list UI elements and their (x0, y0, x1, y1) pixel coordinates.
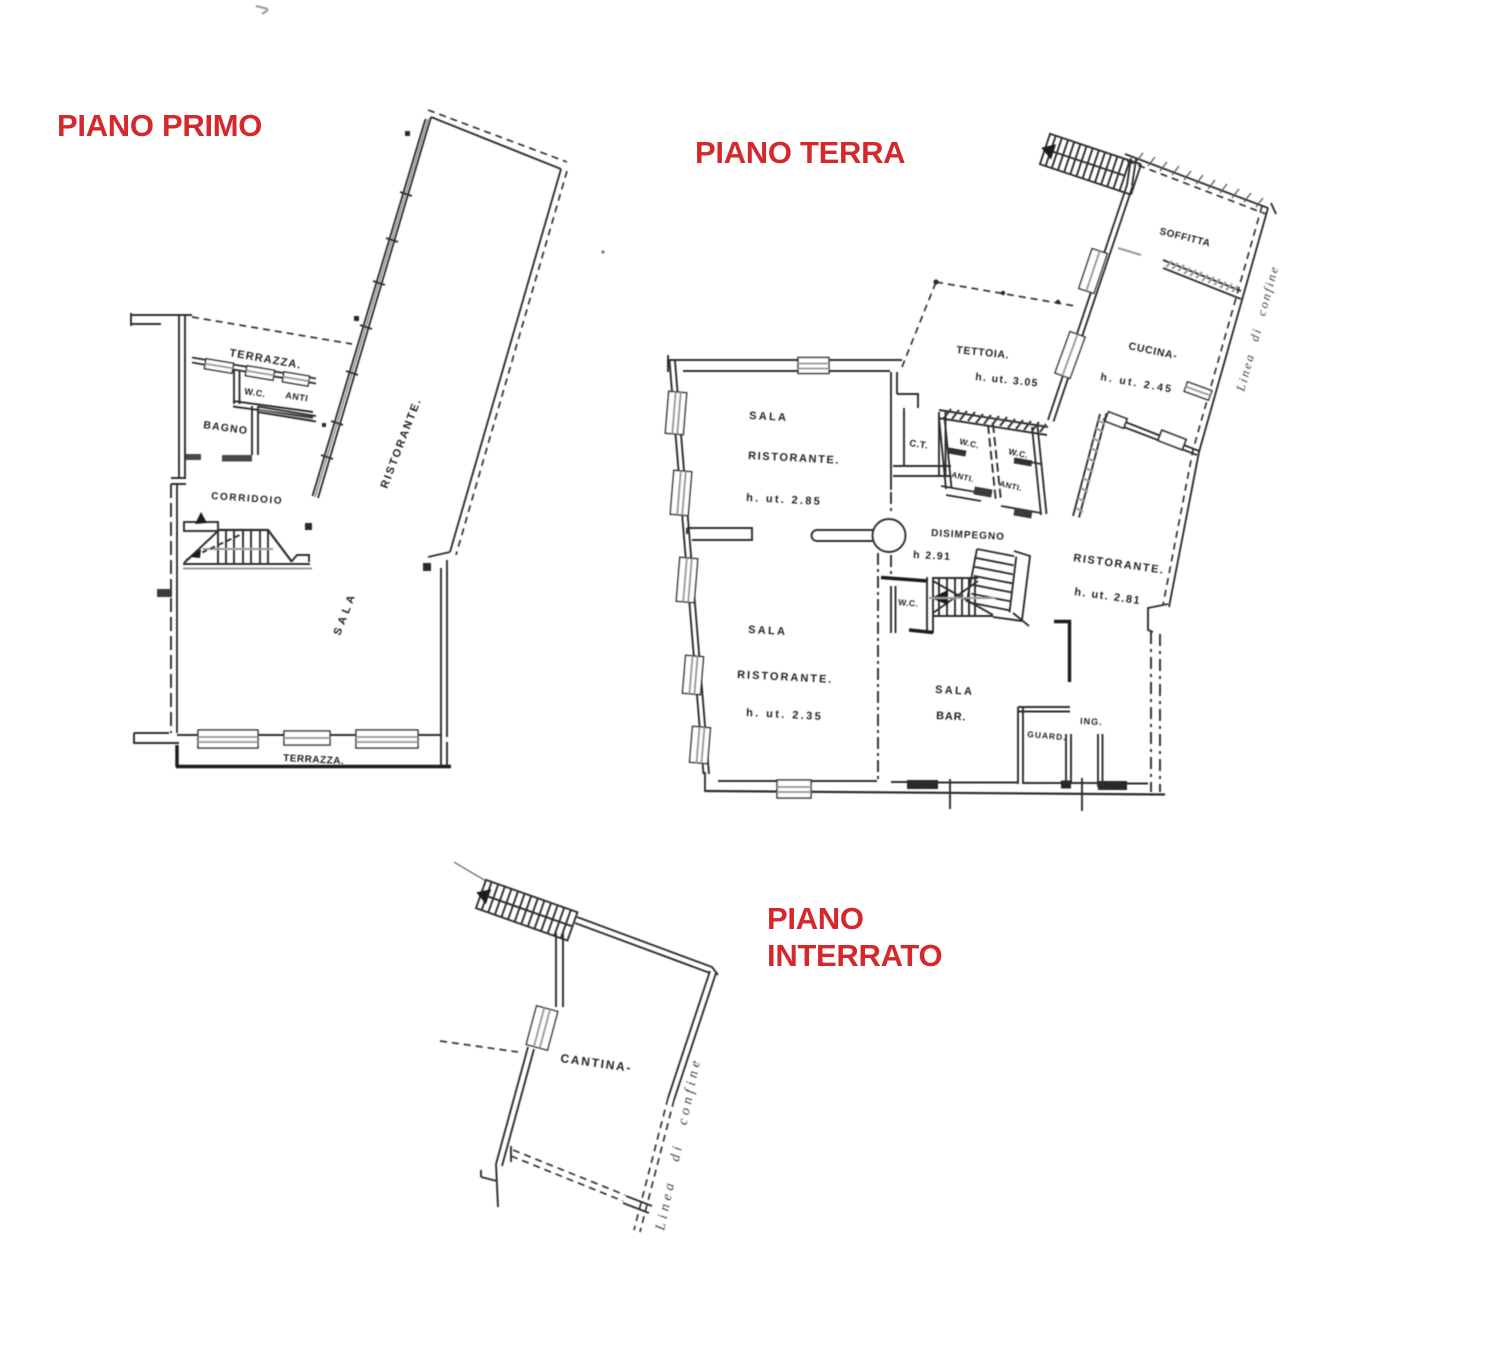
svg-text:CUCINA-: CUCINA- (1127, 340, 1178, 362)
svg-text:C.T.: C.T. (909, 438, 929, 452)
svg-text:h. ut. 2.81: h. ut. 2.81 (1074, 586, 1142, 607)
svg-text:TERRAZZA.: TERRAZZA. (228, 347, 302, 372)
svg-text:SOFFITTA: SOFFITTA (1158, 226, 1211, 249)
svg-text:BAR.: BAR. (936, 710, 967, 724)
svg-text:ANTI.: ANTI. (951, 470, 975, 484)
svg-text:Linea di confine: Linea di confine (1233, 263, 1282, 393)
svg-text:CORRIDOIO: CORRIDOIO (211, 491, 284, 507)
svg-text:RISTORANTE.: RISTORANTE. (379, 396, 425, 490)
svg-text:Linea di confine: Linea di confine (653, 1056, 705, 1233)
svg-text:CANTINA-: CANTINA- (560, 1051, 634, 1075)
svg-text:ING.: ING. (1080, 716, 1103, 727)
svg-text:BAGNO: BAGNO (203, 419, 249, 437)
svg-text:RISTORANTE.: RISTORANTE. (748, 450, 840, 467)
svg-text:SALA: SALA (332, 590, 360, 637)
svg-text:DISIMPEGNO: DISIMPEGNO (931, 528, 1005, 543)
svg-text:SALA: SALA (748, 624, 788, 638)
svg-text:W.C.: W.C. (244, 386, 267, 399)
svg-text:SALA: SALA (935, 684, 975, 698)
svg-text:h. ut. 3.05: h. ut. 3.05 (975, 371, 1040, 390)
svg-text:ANTI: ANTI (285, 390, 309, 403)
svg-text:W.C.: W.C. (1008, 446, 1030, 460)
svg-text:W.C.: W.C. (898, 597, 919, 609)
svg-text:TETTOIA.: TETTOIA. (956, 344, 1010, 362)
svg-text:SALA: SALA (749, 410, 789, 424)
svg-text:ANTI.: ANTI. (999, 479, 1023, 493)
svg-text:h 2.91: h 2.91 (913, 549, 952, 563)
svg-text:h. ut. 2.35: h. ut. 2.35 (746, 707, 824, 723)
svg-text:RISTORANTE.: RISTORANTE. (1073, 552, 1166, 577)
svg-text:h. ut. 2.85: h. ut. 2.85 (746, 492, 823, 508)
svg-text:GUARD.: GUARD. (1027, 729, 1067, 742)
svg-text:RISTORANTE.: RISTORANTE. (737, 669, 834, 686)
svg-text:W.C.: W.C. (959, 436, 981, 450)
svg-text:h. ut. 2.45: h. ut. 2.45 (1099, 371, 1174, 396)
